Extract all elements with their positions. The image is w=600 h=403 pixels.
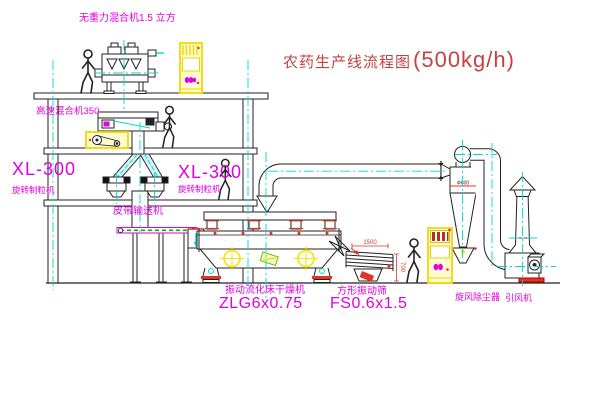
- control-cabinet-top: [180, 43, 202, 93]
- sieve-height-dimension: 700: [399, 262, 405, 273]
- label-high-speed-mixer: 高速混合机350: [36, 107, 99, 117]
- label-sieve-model: FS0.6x1.5: [330, 296, 407, 312]
- cyclone-dimension-text: Φ600: [457, 181, 470, 187]
- label-gravity-free-mixer: 无重力混合机1.5 立方: [79, 14, 176, 24]
- title-text: 农药生产线流程图: [283, 51, 411, 72]
- belt-conveyor: [117, 228, 197, 283]
- diagram-title: 农药生产线流程图 (500kg/h): [283, 47, 515, 73]
- title-capacity: (500kg/h): [413, 47, 515, 73]
- label-granulator-mid-model: XL-300: [178, 163, 242, 181]
- control-cabinet-ground: [428, 228, 452, 283]
- label-granulator-left-name: 旋转制粒机: [12, 186, 55, 195]
- cyclone-dust-collector: Φ600: [450, 147, 510, 271]
- label-dryer-model: ZLG6x0.75: [219, 296, 303, 312]
- sieve-length-dimension: 1500: [363, 240, 377, 246]
- fluid-bed-dryer: [188, 196, 341, 283]
- label-cyclone: 旋风除尘器: [455, 293, 500, 302]
- y-feed-chute: [112, 154, 163, 178]
- dryer-exhaust-duct: [259, 161, 450, 196]
- pesticide-line-flow-diagram: Φ600 1500 700: [0, 0, 600, 403]
- gravity-free-mixer: [95, 43, 164, 94]
- label-fan: 引风机: [505, 294, 532, 303]
- label-belt-conveyor: 皮带输送机: [113, 207, 163, 217]
- label-granulator-left-model: XL-300: [12, 160, 76, 178]
- label-granulator-mid-name: 旋转制粒机: [178, 185, 221, 194]
